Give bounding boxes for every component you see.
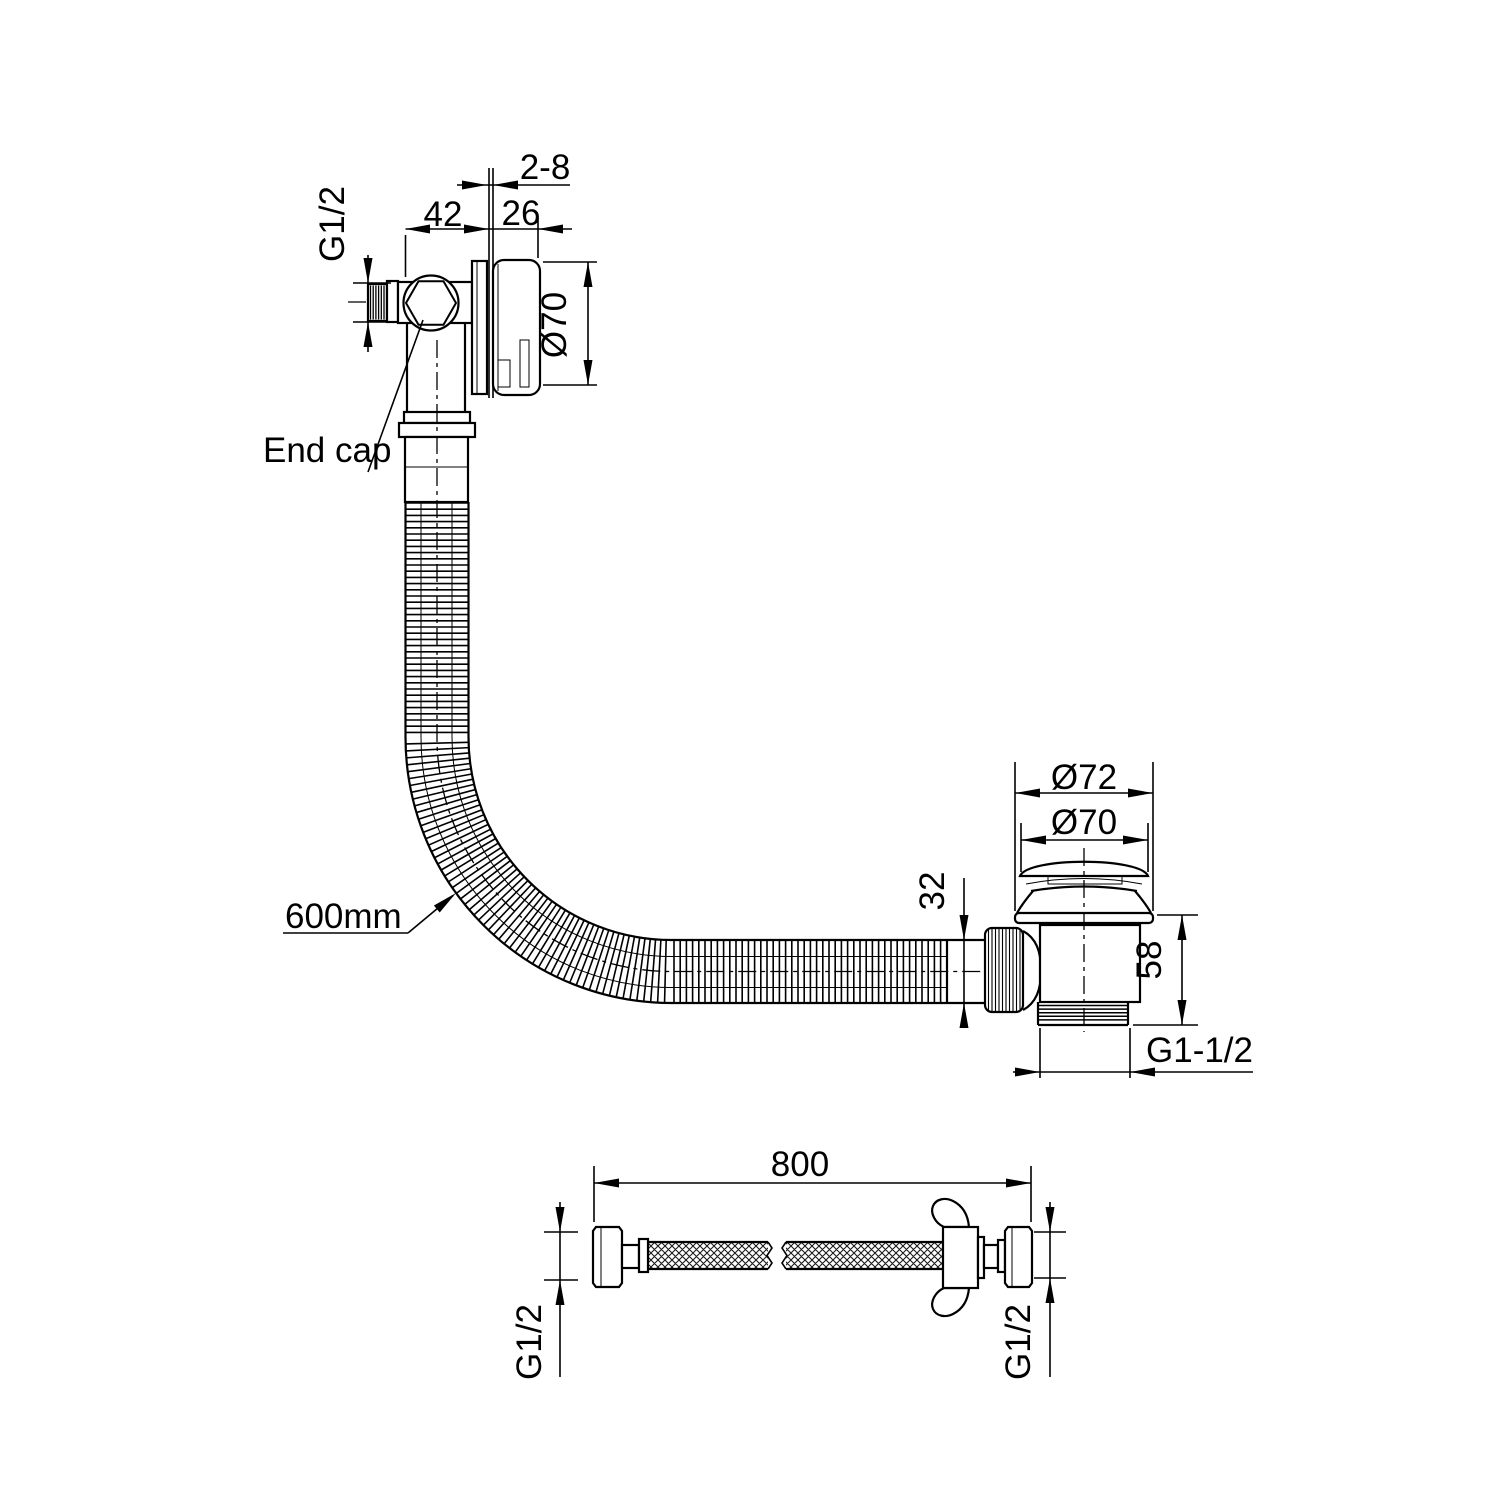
dim-800-label: 800 <box>771 1145 829 1184</box>
dim-outlet-thread-label: G1-1/2 <box>1146 1031 1253 1070</box>
supply-left-hex-nut <box>593 1227 622 1287</box>
dim-42-label: 42 <box>424 195 463 234</box>
dim-plug-diameter-label: Ø70 <box>1051 803 1117 842</box>
drawing-background <box>0 0 1500 1500</box>
supply-left-neck <box>622 1245 639 1268</box>
wall-flange <box>472 261 487 394</box>
waste-knurled-nut <box>985 928 1023 1012</box>
dim-left-thread-label: G1/2 <box>510 1304 549 1380</box>
end-cap-circle <box>404 276 459 331</box>
wing-nut-hub <box>943 1227 978 1288</box>
hose-length-label: 600mm <box>285 897 402 936</box>
bath-filler-technical-drawing: 2-8 42 26 G1/2 Ø70 End cap <box>0 0 1500 1500</box>
supply-right-hex-nut <box>1005 1227 1032 1287</box>
dim-58-label: 58 <box>1130 941 1169 980</box>
dim-inlet-thread-label: G1/2 <box>313 186 352 262</box>
dim-wall-thickness-label: 2-8 <box>520 148 571 187</box>
dim-32-label: 32 <box>913 872 952 911</box>
dim-flange-diameter-label: Ø72 <box>1051 758 1117 797</box>
braided-hose-left-section <box>648 1242 768 1269</box>
inlet-collar <box>387 281 398 322</box>
dim-right-thread-label: G1/2 <box>999 1304 1038 1380</box>
supply-left-ferrule <box>639 1239 648 1272</box>
end-cap-label: End cap <box>263 431 391 470</box>
waste-body <box>1040 925 1140 1002</box>
overflow-rosette-cap <box>493 260 540 395</box>
technical-drawing-page: 2-8 42 26 G1/2 Ø70 End cap <box>0 0 1500 1500</box>
dim-cap-diameter-label: Ø70 <box>535 292 574 358</box>
braided-hose-right-section <box>786 1242 942 1269</box>
supply-right-neck <box>984 1245 998 1268</box>
dim-26-label: 26 <box>502 194 541 233</box>
